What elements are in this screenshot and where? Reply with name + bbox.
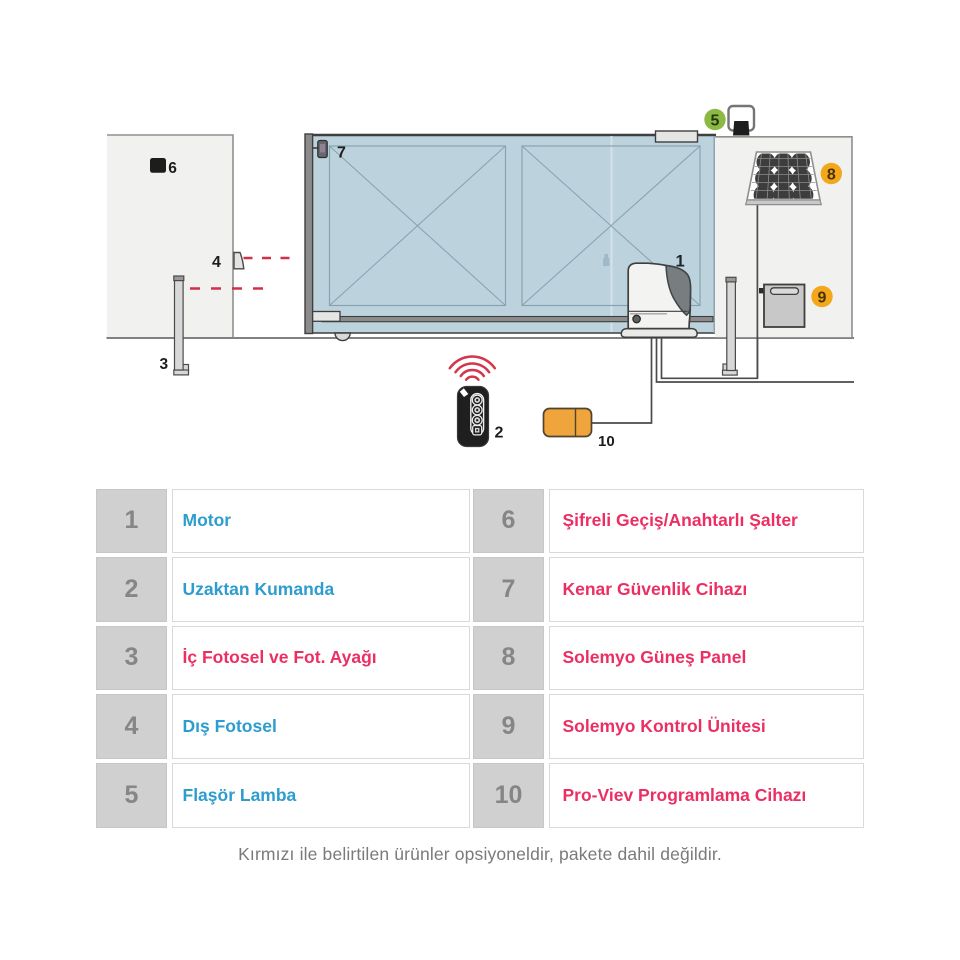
svg-text:4: 4 [212, 254, 221, 271]
svg-text:3: 3 [160, 356, 169, 373]
svg-text:7: 7 [337, 145, 346, 162]
svg-text:1: 1 [676, 253, 685, 271]
svg-text:5: 5 [711, 113, 720, 130]
svg-text:8: 8 [827, 167, 836, 184]
svg-text:10: 10 [598, 433, 615, 450]
svg-text:2: 2 [495, 425, 504, 442]
svg-text:6: 6 [168, 160, 177, 177]
svg-text:9: 9 [818, 290, 827, 307]
